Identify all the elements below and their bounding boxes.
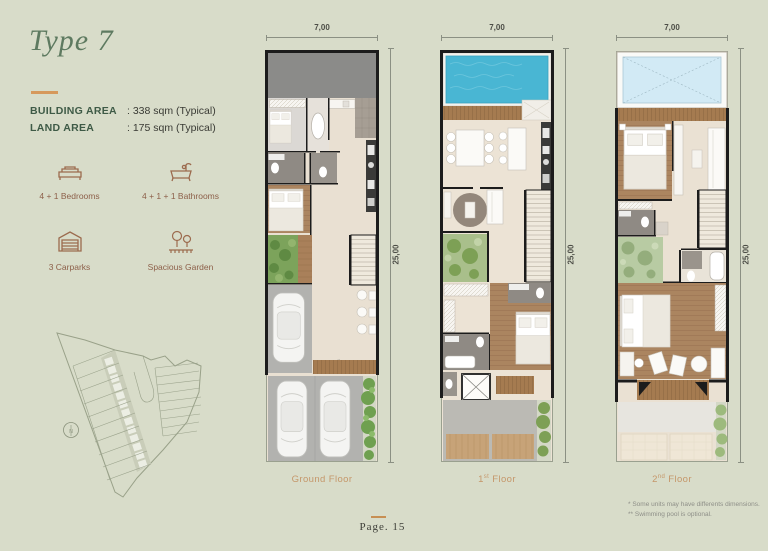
stairs [351,235,376,285]
sofa [708,128,725,190]
ground-floor-plan [265,50,379,463]
second-floor-width-dim: 7,00 [615,23,729,32]
page-footer-line [371,516,386,518]
second-floor-width-dimline [616,37,728,38]
ground-floor-height-dim: 25,00 [392,238,401,272]
first-floor-label: 1st Floor [410,474,584,485]
bed-icon [54,158,86,184]
first-floor-width-dim: 7,00 [440,23,554,32]
bed [620,295,670,347]
stairs [526,190,551,282]
stairs [699,190,726,248]
roof [268,53,376,98]
first-floor-width-dimline [441,37,553,38]
garden-icon [163,227,199,255]
carport-icon [54,227,86,255]
feature-label: 3 Carparks [14,262,125,272]
bed [624,127,666,189]
ground-floor-width-dimline [266,37,378,38]
bed [270,110,291,143]
land-area-row: LAND AREA: 175 sqm (Typical) [30,120,216,137]
page-title: Type 7 [29,24,114,58]
bathtub-icon [165,158,197,184]
land-area-value: : 175 sqm (Typical) [127,122,216,134]
building-area-value: : 338 sqm (Typical) [127,105,216,117]
ground-floor-label: Ground Floor [235,474,409,485]
land-area-label: LAND AREA [30,120,127,137]
footnote-pool: ** Swimming pool is optional. [628,510,768,520]
ground-floor-width-dim: 7,00 [265,23,379,32]
spec-list: BUILDING AREA: 338 sqm (Typical) LAND AR… [30,103,216,137]
bed [516,312,550,364]
feature-label: Spacious Garden [125,262,236,272]
bed [269,189,303,231]
deck [313,360,376,374]
compass-label: N [69,429,73,435]
footnotes: * Some units may have differents dimensi… [628,500,768,520]
feature-carparks: 3 Carparks [14,227,125,272]
swimming-pool [446,56,548,103]
first-floor-height-dim: 25,00 [567,238,576,272]
deck [618,108,726,121]
sofa [487,190,503,224]
feature-label: 4 + 1 + 1 Bathrooms [125,191,236,201]
car [320,381,350,457]
dining-table [456,130,484,166]
terrace [618,402,716,432]
bathtub [312,113,325,139]
feature-grid: 4 + 1 Bedrooms 4 + 1 + 1 Bathrooms 3 Car… [14,158,236,272]
car [277,381,307,457]
building-area-label: BUILDING AREA [30,103,127,120]
compass-icon: N [64,423,79,438]
bathtub [445,356,475,368]
first-floor-plan [440,50,554,463]
second-floor-height-dim: 25,00 [742,238,751,272]
second-floor-plan [615,50,729,463]
page-number: Page. 15 [340,521,425,533]
title-underline [31,91,58,94]
site-plan: N [15,330,220,508]
building-area-row: BUILDING AREA: 338 sqm (Typical) [30,103,216,120]
second-floor-label: 2nd Floor [585,474,759,485]
pool-deck [443,106,522,120]
brochure-page: { "header": { "title": "Type 7" }, "spec… [0,0,768,551]
feature-label: 4 + 1 Bedrooms [14,191,125,201]
car [273,293,305,362]
island [508,128,526,170]
feature-garden: Spacious Garden [125,227,236,272]
feature-bedrooms: 4 + 1 Bedrooms [14,158,125,201]
bathtub [710,252,724,280]
footnote-dimensions: * Some units may have differents dimensi… [628,500,768,510]
feature-bathrooms: 4 + 1 + 1 Bathrooms [125,158,236,201]
